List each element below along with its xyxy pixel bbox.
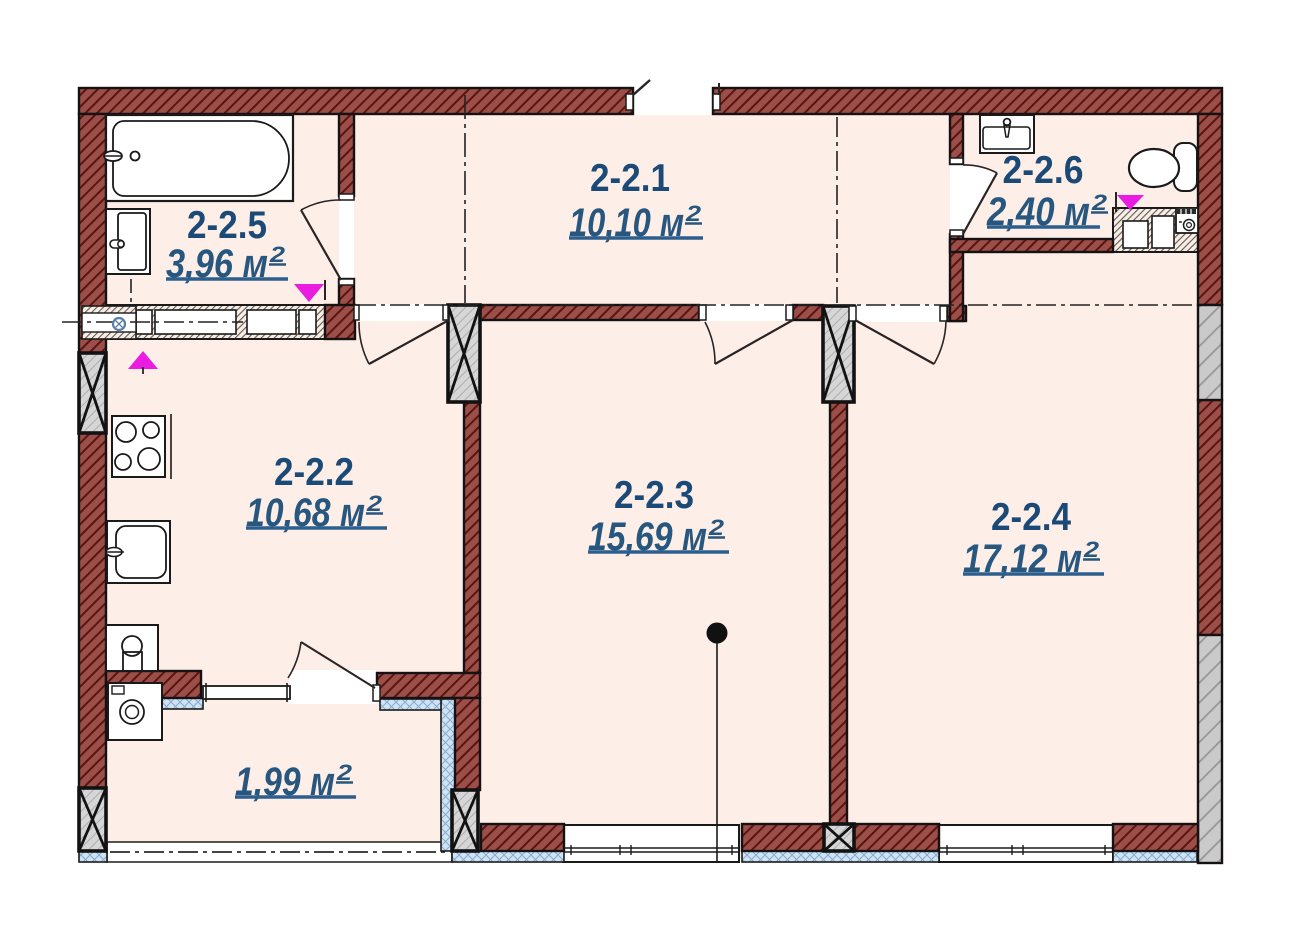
- svg-text:2-2.2: 2-2.2: [274, 451, 354, 494]
- svg-text:2: 2: [708, 515, 725, 540]
- svg-text:2-2.3: 2-2.3: [614, 474, 694, 517]
- svg-text:2: 2: [1091, 190, 1108, 215]
- svg-text:2: 2: [685, 201, 702, 226]
- svg-text:2-2.4: 2-2.4: [991, 496, 1072, 539]
- svg-text:2-2.1: 2-2.1: [590, 157, 670, 200]
- svg-text:2: 2: [1083, 537, 1100, 562]
- svg-text:2: 2: [366, 491, 383, 516]
- svg-text:2: 2: [269, 242, 286, 267]
- svg-text:2-2.5: 2-2.5: [187, 204, 267, 247]
- svg-text:2-2.6: 2-2.6: [1003, 149, 1084, 192]
- svg-text:2: 2: [336, 760, 353, 785]
